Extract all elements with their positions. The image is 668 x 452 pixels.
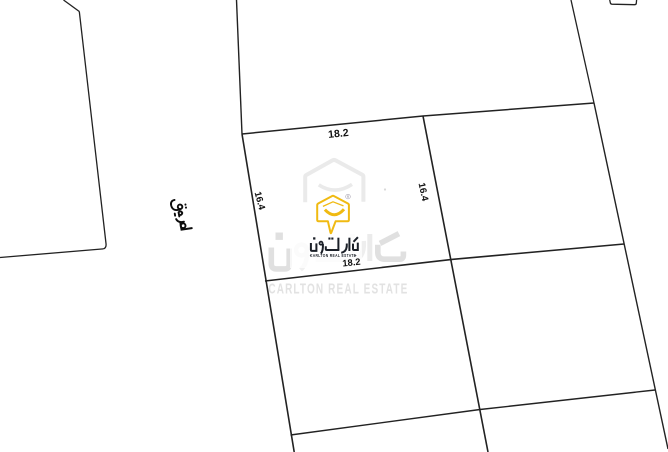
svg-text:18.2: 18.2 (328, 127, 350, 141)
svg-text:CARLTON REAL ESTATE: CARLTON REAL ESTATE (268, 279, 408, 297)
svg-text:18.2: 18.2 (342, 257, 361, 269)
